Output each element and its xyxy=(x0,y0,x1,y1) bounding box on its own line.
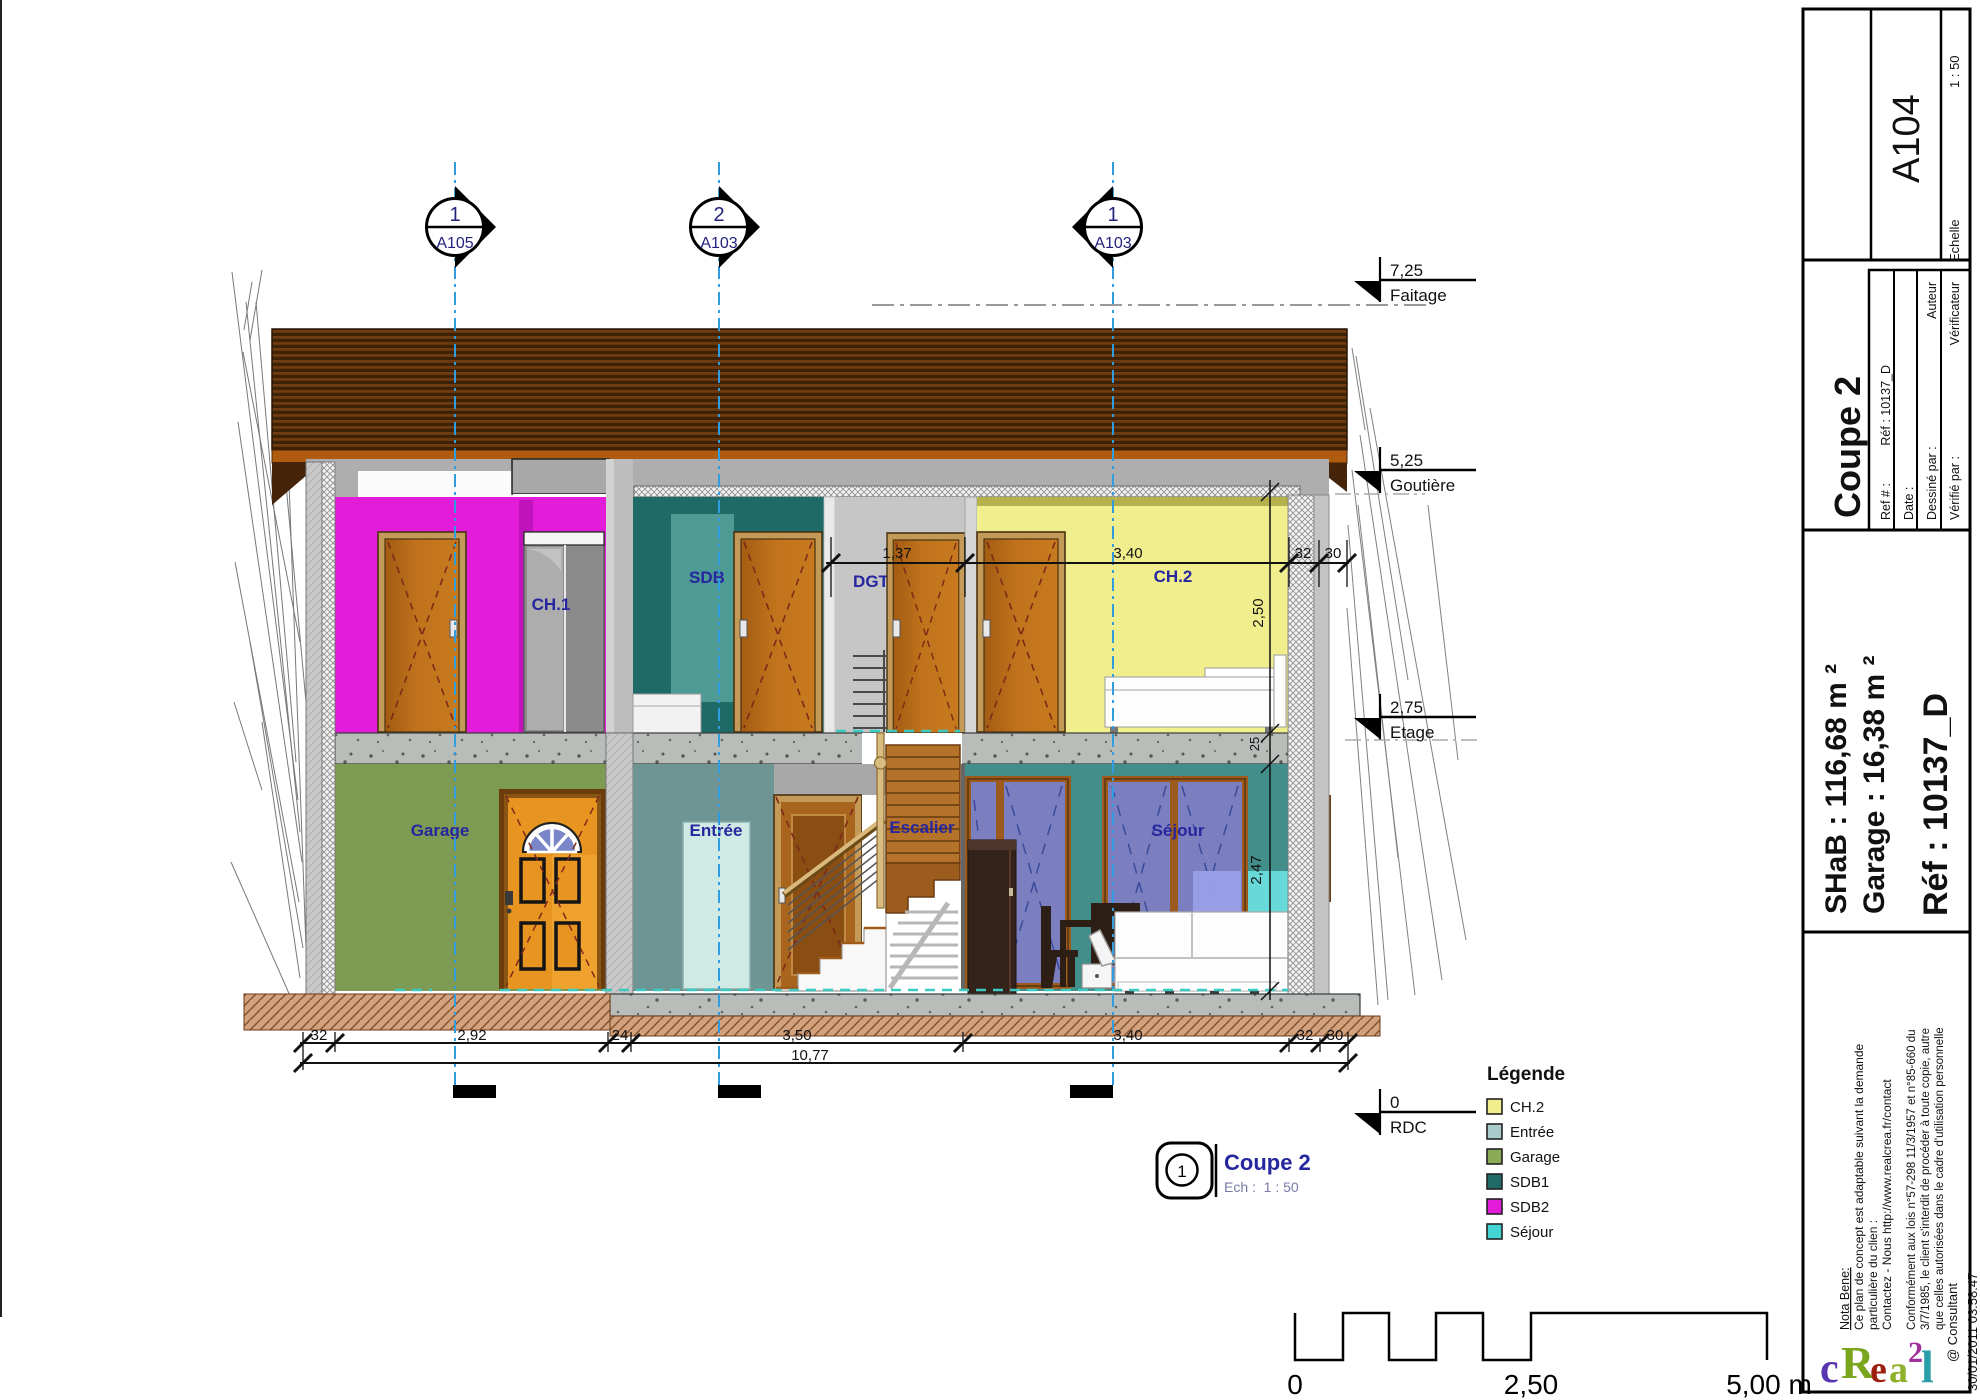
svg-text:1: 1 xyxy=(1107,204,1118,226)
svg-text:32: 32 xyxy=(311,1027,328,1044)
svg-text:32: 32 xyxy=(1295,545,1312,562)
svg-text:30: 30 xyxy=(1325,545,1342,562)
svg-text:Réf : 10137_D: Réf : 10137_D xyxy=(1879,365,1893,446)
svg-text:A104: A104 xyxy=(1886,94,1928,183)
svg-text:CH.2: CH.2 xyxy=(1510,1099,1544,1116)
svg-text:@ Consultant: @ Consultant xyxy=(1945,1283,1960,1362)
svg-text:Nota Bene:: Nota Bene: xyxy=(1838,1267,1852,1330)
svg-text:30: 30 xyxy=(1327,1027,1344,1044)
svg-text:1: 1 xyxy=(1177,1162,1186,1181)
svg-text:A103: A103 xyxy=(1094,235,1131,252)
svg-text:Ech : 1 : 50: Ech : 1 : 50 xyxy=(1224,1179,1299,1195)
svg-text:Légende: Légende xyxy=(1487,1064,1565,1085)
svg-text:Etage: Etage xyxy=(1390,723,1434,742)
svg-text:1: 1 xyxy=(449,204,460,226)
svg-text:CH.2: CH.2 xyxy=(1154,567,1193,586)
svg-text:Entrée: Entrée xyxy=(1510,1124,1554,1141)
svg-text:Ce plan de concept est adaptab: Ce plan de concept est adaptable suivant… xyxy=(1852,1043,1866,1330)
svg-text:Séjour: Séjour xyxy=(1510,1224,1553,1241)
svg-text:Conformément aux lois n°57-298: Conformément aux lois n°57-298 11/3/1957… xyxy=(1906,1029,1918,1330)
svg-text:a: a xyxy=(1889,1349,1908,1391)
svg-text:32: 32 xyxy=(1297,1027,1314,1044)
svg-text:Ref # :: Ref # : xyxy=(1879,483,1893,520)
svg-text:Echelle: Echelle xyxy=(1947,219,1962,262)
svg-text:SHaB : 116,68 m ²: SHaB : 116,68 m ² xyxy=(1820,664,1853,914)
svg-text:Vérificateur: Vérificateur xyxy=(1948,282,1962,345)
svg-text:Auteur: Auteur xyxy=(1925,282,1939,319)
svg-text:30/01/2011 03:58:47: 30/01/2011 03:58:47 xyxy=(1965,1273,1980,1391)
svg-text:Date :: Date : xyxy=(1902,487,1916,520)
svg-text:2,75: 2,75 xyxy=(1390,698,1423,717)
svg-text:Garage: Garage xyxy=(411,821,470,840)
svg-text:RDC: RDC xyxy=(1390,1118,1427,1137)
svg-text:0: 0 xyxy=(1287,1369,1303,1400)
svg-text:Contactez - Nous http://www.re: Contactez - Nous http://www.realcrea.fr/… xyxy=(1880,1079,1894,1330)
svg-text:Garage: Garage xyxy=(1510,1149,1560,1166)
svg-text:l: l xyxy=(1921,1341,1934,1392)
svg-text:5,00 m: 5,00 m xyxy=(1726,1369,1812,1400)
svg-text:SDB2: SDB2 xyxy=(1510,1199,1549,1216)
svg-text:CH.1: CH.1 xyxy=(532,595,571,614)
svg-text:A105: A105 xyxy=(436,235,473,252)
svg-text:Dessiné par :: Dessiné par : xyxy=(1925,446,1939,520)
svg-text:SDB1: SDB1 xyxy=(1510,1174,1549,1191)
svg-text:1,37: 1,37 xyxy=(882,545,911,562)
svg-text:2,50: 2,50 xyxy=(1250,598,1267,627)
svg-text:7,25: 7,25 xyxy=(1390,261,1423,280)
svg-text:3,40: 3,40 xyxy=(1113,545,1142,562)
svg-text:0: 0 xyxy=(1390,1093,1399,1112)
svg-text:c: c xyxy=(1820,1346,1839,1392)
svg-text:10,77: 10,77 xyxy=(791,1047,829,1064)
svg-text:DGT: DGT xyxy=(853,572,890,591)
svg-text:5,25: 5,25 xyxy=(1390,451,1423,470)
svg-text:e: e xyxy=(1870,1349,1887,1391)
svg-text:3,40: 3,40 xyxy=(1113,1027,1142,1044)
svg-text:Réf : 10137_D: Réf : 10137_D xyxy=(1917,693,1955,916)
svg-text:Vérifié par :: Vérifié par : xyxy=(1948,456,1962,520)
svg-text:Escalier: Escalier xyxy=(889,818,955,837)
svg-text:2: 2 xyxy=(713,204,724,226)
svg-text:Goutière: Goutière xyxy=(1390,476,1455,495)
svg-text:3,50: 3,50 xyxy=(782,1027,811,1044)
svg-text:Séjour: Séjour xyxy=(1152,821,1205,840)
svg-text:25: 25 xyxy=(1247,737,1262,751)
svg-text:24: 24 xyxy=(612,1027,629,1044)
svg-text:Garage : 16,38 m ²: Garage : 16,38 m ² xyxy=(1858,656,1891,914)
svg-text:Coupe 2: Coupe 2 xyxy=(1224,1150,1311,1175)
svg-text:1 : 50: 1 : 50 xyxy=(1947,55,1962,88)
svg-text:Entrée: Entrée xyxy=(690,821,743,840)
svg-text:Faitage: Faitage xyxy=(1390,286,1447,305)
svg-text:3/7/1985, le client s'interdit: 3/7/1985, le client s'interdit de procéd… xyxy=(1920,1028,1932,1330)
svg-text:2,92: 2,92 xyxy=(457,1027,486,1044)
svg-text:2,47: 2,47 xyxy=(1248,855,1265,884)
svg-text:Coupe 2: Coupe 2 xyxy=(1827,376,1868,518)
svg-text:particulière du clien :: particulière du clien : xyxy=(1866,1220,1880,1330)
svg-text:A103: A103 xyxy=(700,235,737,252)
svg-text:2,50: 2,50 xyxy=(1504,1369,1559,1400)
